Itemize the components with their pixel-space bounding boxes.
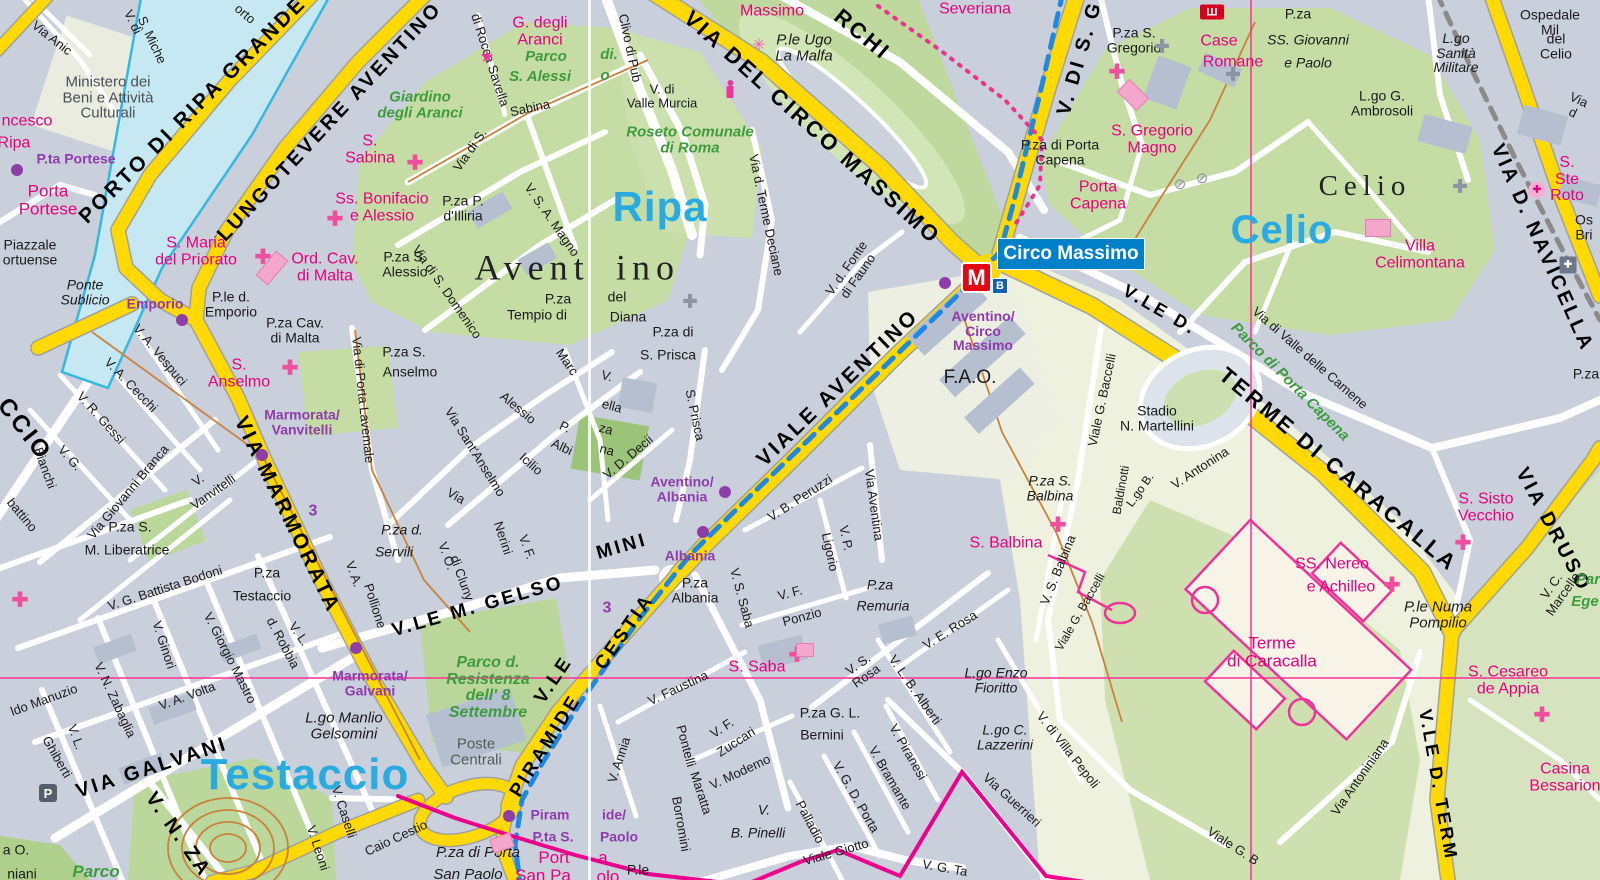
map-label: VIALE AVENTINO xyxy=(753,305,923,471)
map-label: P.le d. Emporio xyxy=(205,289,257,318)
map-label: SS. Nereo xyxy=(1295,557,1369,574)
church-gray-icon: ✚ xyxy=(1225,65,1240,86)
map-label: LUNGOTEVERE AVENTINO xyxy=(214,0,447,246)
map-label: Ord. Cav. di Malta xyxy=(291,251,358,284)
transit-stop-icon xyxy=(11,164,23,176)
map-label: Borromini xyxy=(670,795,693,852)
map-label: Ghiberti xyxy=(40,734,74,780)
map-label: Ospedale Mil xyxy=(1520,7,1580,36)
map-label: 3 xyxy=(309,504,318,521)
map-label: V. G. Battista Bodoni xyxy=(106,563,224,613)
map-label: Clivo di Pub xyxy=(616,13,644,84)
map-label: V. F. xyxy=(516,533,537,561)
map-label: Paolo xyxy=(600,830,638,845)
map-label: Tempio di xyxy=(507,308,567,323)
landmark-building xyxy=(1365,219,1391,237)
map-label: PORTO DI RIPA GRANDE xyxy=(75,0,311,228)
map-label: Viale Giotto xyxy=(802,836,870,867)
map-label: battino xyxy=(4,496,39,535)
map-label: V.LE D. xyxy=(1120,281,1201,338)
map-label: S. Prisca xyxy=(683,388,707,442)
map-label: P.za S. Gregorio xyxy=(1107,25,1161,54)
map-label: S. Sisto Vecchio xyxy=(1458,491,1514,524)
church-gray-icon: ✚ xyxy=(1154,37,1169,58)
map-label: Case xyxy=(1200,34,1237,51)
map-label: V. N. ZA xyxy=(141,789,215,880)
map-label: Via di S. Domenico xyxy=(410,243,484,341)
map-label: V. G. D. Porta xyxy=(830,759,882,835)
map-label: VIA D. NAVICELLA xyxy=(1487,141,1597,355)
map-label: Caio Cestio xyxy=(363,818,430,859)
church-icon: ✚ xyxy=(255,245,272,270)
map-label: Ligorio xyxy=(819,532,840,573)
map-label: V. S. Saba xyxy=(728,567,757,629)
map-label: za xyxy=(598,421,615,438)
map-label: G. degli Aranci xyxy=(512,15,567,48)
map-label: Marmorata/ Vanvitelli xyxy=(264,407,339,436)
map-label: Avent xyxy=(474,249,589,286)
map-label: ncesco xyxy=(2,114,53,131)
map-label: V. L. B. Alberti xyxy=(886,653,944,727)
map-label: P. xyxy=(557,419,572,436)
map-label: Giardino degli Aranci xyxy=(377,89,462,120)
map-label: Piram xyxy=(531,808,570,823)
map-label: orto xyxy=(232,2,258,27)
poi-star-icon: ★ xyxy=(479,47,494,67)
map-label: CCIO xyxy=(0,394,56,466)
map-label: Pollione xyxy=(361,582,388,630)
map-label: V. Modemo xyxy=(708,752,773,792)
map-label: V. G. Ta xyxy=(921,857,968,878)
map-label: V. F. xyxy=(708,716,736,741)
map-label: P.ta S. xyxy=(533,830,574,845)
church-icon: ✚ xyxy=(282,356,299,381)
map-label: P.le Ugo La Malfa xyxy=(775,32,833,63)
map-label: V. A. Vespuci xyxy=(131,322,190,388)
church-gray-icon: ✚ xyxy=(682,292,697,313)
map-label: V. A. xyxy=(343,559,365,588)
map-label: S. Miche xyxy=(135,14,169,66)
map-label: Severiana xyxy=(939,2,1011,19)
map-label: Via di Valle delle Camene xyxy=(1250,304,1370,411)
map-label: V. xyxy=(190,471,207,488)
map-label: Albania xyxy=(665,549,716,564)
metro-station-name: Circo Massimo xyxy=(1003,243,1138,265)
transit-stop-icon xyxy=(719,486,731,498)
church-icon: ✚ xyxy=(12,588,29,613)
map-label: Parco di Porta Capena xyxy=(1228,320,1352,444)
map-label: Diana xyxy=(610,310,647,325)
map-label: a O. xyxy=(3,843,29,858)
map-label: Via Anic xyxy=(29,18,74,57)
map-label: Ripa xyxy=(0,136,30,153)
church-icon: ✚ xyxy=(1534,703,1551,728)
map-label: Viale G. Baccelli xyxy=(1086,352,1119,447)
map-label: di Rocca Savella xyxy=(469,12,512,108)
map-label: V. R. Gessi xyxy=(74,389,127,446)
map-label: S. Saba xyxy=(729,660,786,677)
transit-stop-icon xyxy=(697,526,709,538)
map-label: Ponte Sublicio xyxy=(60,277,109,306)
map-label: Via xyxy=(445,486,468,507)
map-label: CESTIA xyxy=(592,590,658,673)
map-label: P.za S. Balbina xyxy=(1027,473,1074,502)
hospital-icon[interactable]: ✚ xyxy=(1560,257,1577,274)
map-label: S. Maria del Priorato xyxy=(155,235,237,268)
map-label: ella xyxy=(600,397,623,415)
map-label: S. Balbina xyxy=(970,536,1043,553)
map-label: Aventino/ Circo Massimo xyxy=(951,309,1014,353)
map-label: TERME DI CARACALLA xyxy=(1214,364,1461,576)
map-label: Massimo xyxy=(740,4,804,21)
map-label: P.za Cav. di Malta xyxy=(266,315,324,344)
map-label: F.A.O. xyxy=(944,368,997,388)
map-label: V. Giorgio Mastro xyxy=(201,610,258,705)
landmark-building xyxy=(796,643,814,657)
map-label: Marmorata/ Galvani xyxy=(332,668,407,697)
map-label: Via di Porta Lavemale xyxy=(350,336,377,464)
map-label: V. B. Peruzzi xyxy=(765,472,834,524)
transit-stop-icon xyxy=(176,314,188,326)
map-label: Icilio xyxy=(517,450,545,477)
map-label: VIA GALVANI xyxy=(74,734,231,803)
metro-station-label[interactable]: Circo Massimo xyxy=(997,238,1145,270)
map-label: Port xyxy=(538,849,569,867)
map-label: V.LE M. GELSO xyxy=(390,573,566,641)
map-label: P.za S. Alessio xyxy=(382,249,427,278)
map-label: V. E. Rosa xyxy=(921,608,980,652)
map-label: V. Piranesi xyxy=(887,722,930,782)
map-label: Viale G. B xyxy=(1205,824,1261,867)
map-label: P.za di xyxy=(653,325,694,340)
map-label: V. F. xyxy=(776,583,803,602)
map-label: P.ta Portese xyxy=(36,152,115,167)
map-label: S. Gregorio Magno xyxy=(1111,123,1193,156)
map-label: V. C. Marcello xyxy=(1532,562,1582,618)
landmark-building xyxy=(489,832,515,854)
map-label: V. Ginori xyxy=(150,619,178,670)
map-label: V. S. Balbina xyxy=(1038,533,1078,607)
church-icon: ✚ xyxy=(1384,573,1401,598)
map-label: olo xyxy=(597,868,620,880)
landmark-building xyxy=(1117,79,1150,112)
map-label: Par xyxy=(1576,572,1600,588)
map-label: VIA DEL CIRCO MASSIMO xyxy=(679,7,945,249)
map-labels-layer: Via AnicV. diS. MicheortoMinistero dei B… xyxy=(0,0,1600,880)
map-label: P.za xyxy=(1285,7,1311,22)
map-label: Celio xyxy=(1319,171,1412,201)
monument-icon: ✳ xyxy=(752,35,765,55)
map-label: Testaccio xyxy=(201,752,410,798)
map-label: Terme di Caracalla xyxy=(1227,634,1317,669)
map-label: P.za P. d'Illiria xyxy=(442,193,484,222)
map-label: Via di S. xyxy=(451,126,490,173)
map-label: V. di Valle Murcia xyxy=(627,82,698,109)
map-label: V. Faustina xyxy=(646,668,710,708)
map-label: P.za xyxy=(254,566,280,581)
map-label: Zuccari xyxy=(714,725,757,760)
church-gray-icon: ✚ xyxy=(1452,177,1467,198)
map-label: e Achilleo xyxy=(1307,580,1376,597)
map-label: Via Antoniniana xyxy=(1329,736,1392,818)
map-label: L.go Enzo Fioritto xyxy=(964,665,1027,694)
map-label: PIRAMIDE xyxy=(507,691,586,801)
map-label: di Cluny xyxy=(448,554,477,603)
map-label: S. Anselmo xyxy=(208,357,270,390)
map-label: V.LE xyxy=(531,653,577,708)
map-label: Baldinotti xyxy=(1111,465,1132,516)
map-label: ide/ xyxy=(602,808,626,823)
map-label: Parco xyxy=(525,49,567,65)
map-label: V. D. Decii xyxy=(601,432,656,481)
map-label: Pontelli xyxy=(674,724,698,769)
map-label: 3 xyxy=(603,601,612,618)
map-label: Romane xyxy=(1203,55,1263,72)
map-label: a xyxy=(598,849,607,867)
church-icon: ✚ xyxy=(327,207,344,232)
map-label: P.za di Porta Capena xyxy=(1021,137,1099,166)
map-label: Os Bri xyxy=(1575,212,1593,241)
map-label: L.go Manlio Gelsomini xyxy=(305,710,383,741)
map-label: P.za S. xyxy=(382,345,425,360)
map-label: V. O. xyxy=(436,540,458,571)
map-label: Roseto Comunale di Roma xyxy=(626,124,754,155)
map-label: Piazzale ortuense xyxy=(3,237,57,266)
map-label: Nerini xyxy=(491,520,514,556)
map-label: Villa Celimontana xyxy=(1375,238,1465,271)
map-label: Via d. Terme Deciane xyxy=(747,153,786,277)
map-label: L.go G. Ambrosoli xyxy=(1351,88,1413,117)
map-label: VIA DRUSO xyxy=(1512,464,1595,595)
church-icon: ✚ xyxy=(407,151,424,176)
map-label: S. Ste Roto xyxy=(1550,155,1584,205)
map-label: Alessio xyxy=(498,389,539,426)
map-label: L.go B. xyxy=(1124,471,1156,509)
map-label: P.za Albania xyxy=(672,575,719,604)
map-label: V. d. Fonte di Fauno xyxy=(823,239,881,306)
metro-icon[interactable]: M xyxy=(961,262,992,293)
map-label: Bianchi xyxy=(31,446,58,491)
map-label: San Pa xyxy=(515,867,571,880)
map-label: e Paolo xyxy=(1284,56,1331,71)
map-label: Bernini xyxy=(800,728,844,743)
map-label: P.za xyxy=(867,578,893,593)
map-label: P.le Numa Pompilio xyxy=(1404,599,1472,630)
map-label: Porta Portese xyxy=(19,182,78,217)
map-label: V. xyxy=(600,368,614,384)
map-label: V. P. xyxy=(837,524,855,552)
map-label: V. S. Rosa xyxy=(842,650,882,690)
map-label: na xyxy=(598,442,615,459)
map-label: del xyxy=(608,290,627,305)
map-label: Maratta xyxy=(688,770,714,816)
map-label: Servili xyxy=(375,545,413,560)
map-label: V. S. A. Magno xyxy=(522,181,582,259)
map-label: V. Antonina xyxy=(1169,445,1231,492)
map-label: S. Prisca xyxy=(640,348,696,363)
map-label: Via d xyxy=(1559,89,1592,124)
map-label: V. Bramante xyxy=(866,744,913,812)
map-label: Marc xyxy=(553,346,581,377)
map-label: V. di xyxy=(122,8,145,36)
map-label: P.za d. xyxy=(381,523,423,538)
map-label: S. Alessi xyxy=(509,69,571,85)
map-label: V.LE D. TERM xyxy=(1415,708,1460,862)
map-label: ino xyxy=(616,249,680,286)
map-label: P.za S. xyxy=(108,520,151,535)
map-label: RCHI xyxy=(829,5,894,65)
church-icon: ✚ xyxy=(1109,60,1126,85)
map-label: V. Annia xyxy=(605,735,632,784)
map-label: SS. Giovanni xyxy=(1267,33,1349,48)
map-label: Ministero dei Beni e Attività Culturali xyxy=(63,75,154,122)
map-label: Parco d. Resistenza dell' 8 Settembre xyxy=(446,655,530,722)
map-label: M. Liberatrice xyxy=(85,543,170,558)
map-label: Anselmo xyxy=(383,365,437,380)
map-label: P.za di Porta xyxy=(436,845,520,861)
map-label: P.za xyxy=(545,292,571,307)
map-label: Via Giovanni Branca xyxy=(85,442,171,541)
transit-stop-icon xyxy=(939,277,951,289)
map-label: San Paolo xyxy=(433,867,502,880)
fountain-icon: ⊘ xyxy=(1196,169,1209,187)
map-label: V. G. xyxy=(55,443,84,473)
map-label: Ponzio xyxy=(781,605,823,628)
map-label: L.go Sanità Militare xyxy=(1433,31,1478,75)
church-icon: ✚ xyxy=(1455,531,1472,556)
map-label: Sabina xyxy=(509,97,551,119)
map-label: P.le xyxy=(627,863,649,878)
map-label: V. L. xyxy=(286,620,312,649)
map-label: Aventino/ Albania xyxy=(650,474,713,503)
map-label: V. di Villa Pepoli xyxy=(1034,709,1102,790)
map-label: Porta Capena xyxy=(1070,179,1126,212)
map-label: d. Robbia xyxy=(264,615,302,670)
map-viewport[interactable]: Via AnicV. diS. MicheortoMinistero dei B… xyxy=(0,0,1600,880)
map-label: ldo Manuzio xyxy=(9,682,80,719)
map-label: V. xyxy=(758,803,770,818)
map-label: Poste Centrali xyxy=(450,736,502,767)
map-label: Testaccio xyxy=(233,589,291,604)
map-label: VIA MARMORATA xyxy=(230,413,344,617)
map-label: V. L. xyxy=(65,723,86,752)
map-label: V. N. Zabaglia xyxy=(92,660,139,739)
map-label: Albi xyxy=(549,436,574,457)
museum-icon: Ш xyxy=(1200,5,1224,20)
parking-icon[interactable]: P xyxy=(39,784,57,802)
metro-line-b-badge: B xyxy=(992,278,1008,294)
map-label: di. xyxy=(600,47,618,63)
map-label: Stadio N. Martellini xyxy=(1120,403,1194,432)
map-label: Ripa xyxy=(612,185,707,229)
map-label: del Celio xyxy=(1534,31,1578,60)
transit-stop-icon xyxy=(503,810,515,822)
map-label: Vanvitelli xyxy=(188,472,238,512)
transit-stop-icon xyxy=(350,642,362,654)
map-label: niani xyxy=(7,867,37,880)
map-label: Viale G. Baccelli xyxy=(1053,571,1107,653)
map-label: Via Sant'Anselmo xyxy=(442,405,507,499)
map-label: Ege xyxy=(1571,594,1599,610)
map-label: V. A. Volta xyxy=(157,680,217,713)
map-label: Emporio xyxy=(127,297,184,312)
map-label: Casina Bessarion xyxy=(1529,761,1600,794)
map-label: P.za xyxy=(1573,367,1599,382)
map-label: Remuria xyxy=(857,599,910,614)
map-label: V. Caselli xyxy=(329,784,358,839)
church-icon: ✚ xyxy=(1050,513,1067,538)
church-icon: ✚ xyxy=(789,643,806,668)
landmark-building xyxy=(256,251,289,286)
map-label: P.za G. L. xyxy=(800,706,860,721)
map-label: L.go C. Lazzerini xyxy=(977,722,1033,751)
obelisk-icon xyxy=(727,86,734,98)
map-label: o xyxy=(600,68,609,84)
map-label: Palladio xyxy=(793,798,827,845)
fountain-icon: ⊘ xyxy=(1174,175,1187,193)
map-label: Ss. Bonifacio e Alessio xyxy=(335,191,428,224)
map-label: MINI xyxy=(594,530,650,563)
transit-stop-icon xyxy=(256,449,268,461)
map-label: V. DI S. G xyxy=(1054,0,1107,118)
map-label: Via Aventina xyxy=(862,469,885,542)
map-label: S. Cesareo de Appia xyxy=(1468,664,1548,697)
map-label: B. Pinelli xyxy=(731,826,785,841)
map-label: Celio xyxy=(1231,210,1334,252)
map-label: V. Leoni xyxy=(304,824,331,872)
map-label: S. Sabina xyxy=(345,133,395,166)
map-label: V. A. Cecchi xyxy=(102,355,160,414)
map-label: Via Guerrieri xyxy=(980,771,1043,830)
round-church-icon: ✚ xyxy=(1529,182,1546,199)
map-label: Parco xyxy=(72,863,119,880)
